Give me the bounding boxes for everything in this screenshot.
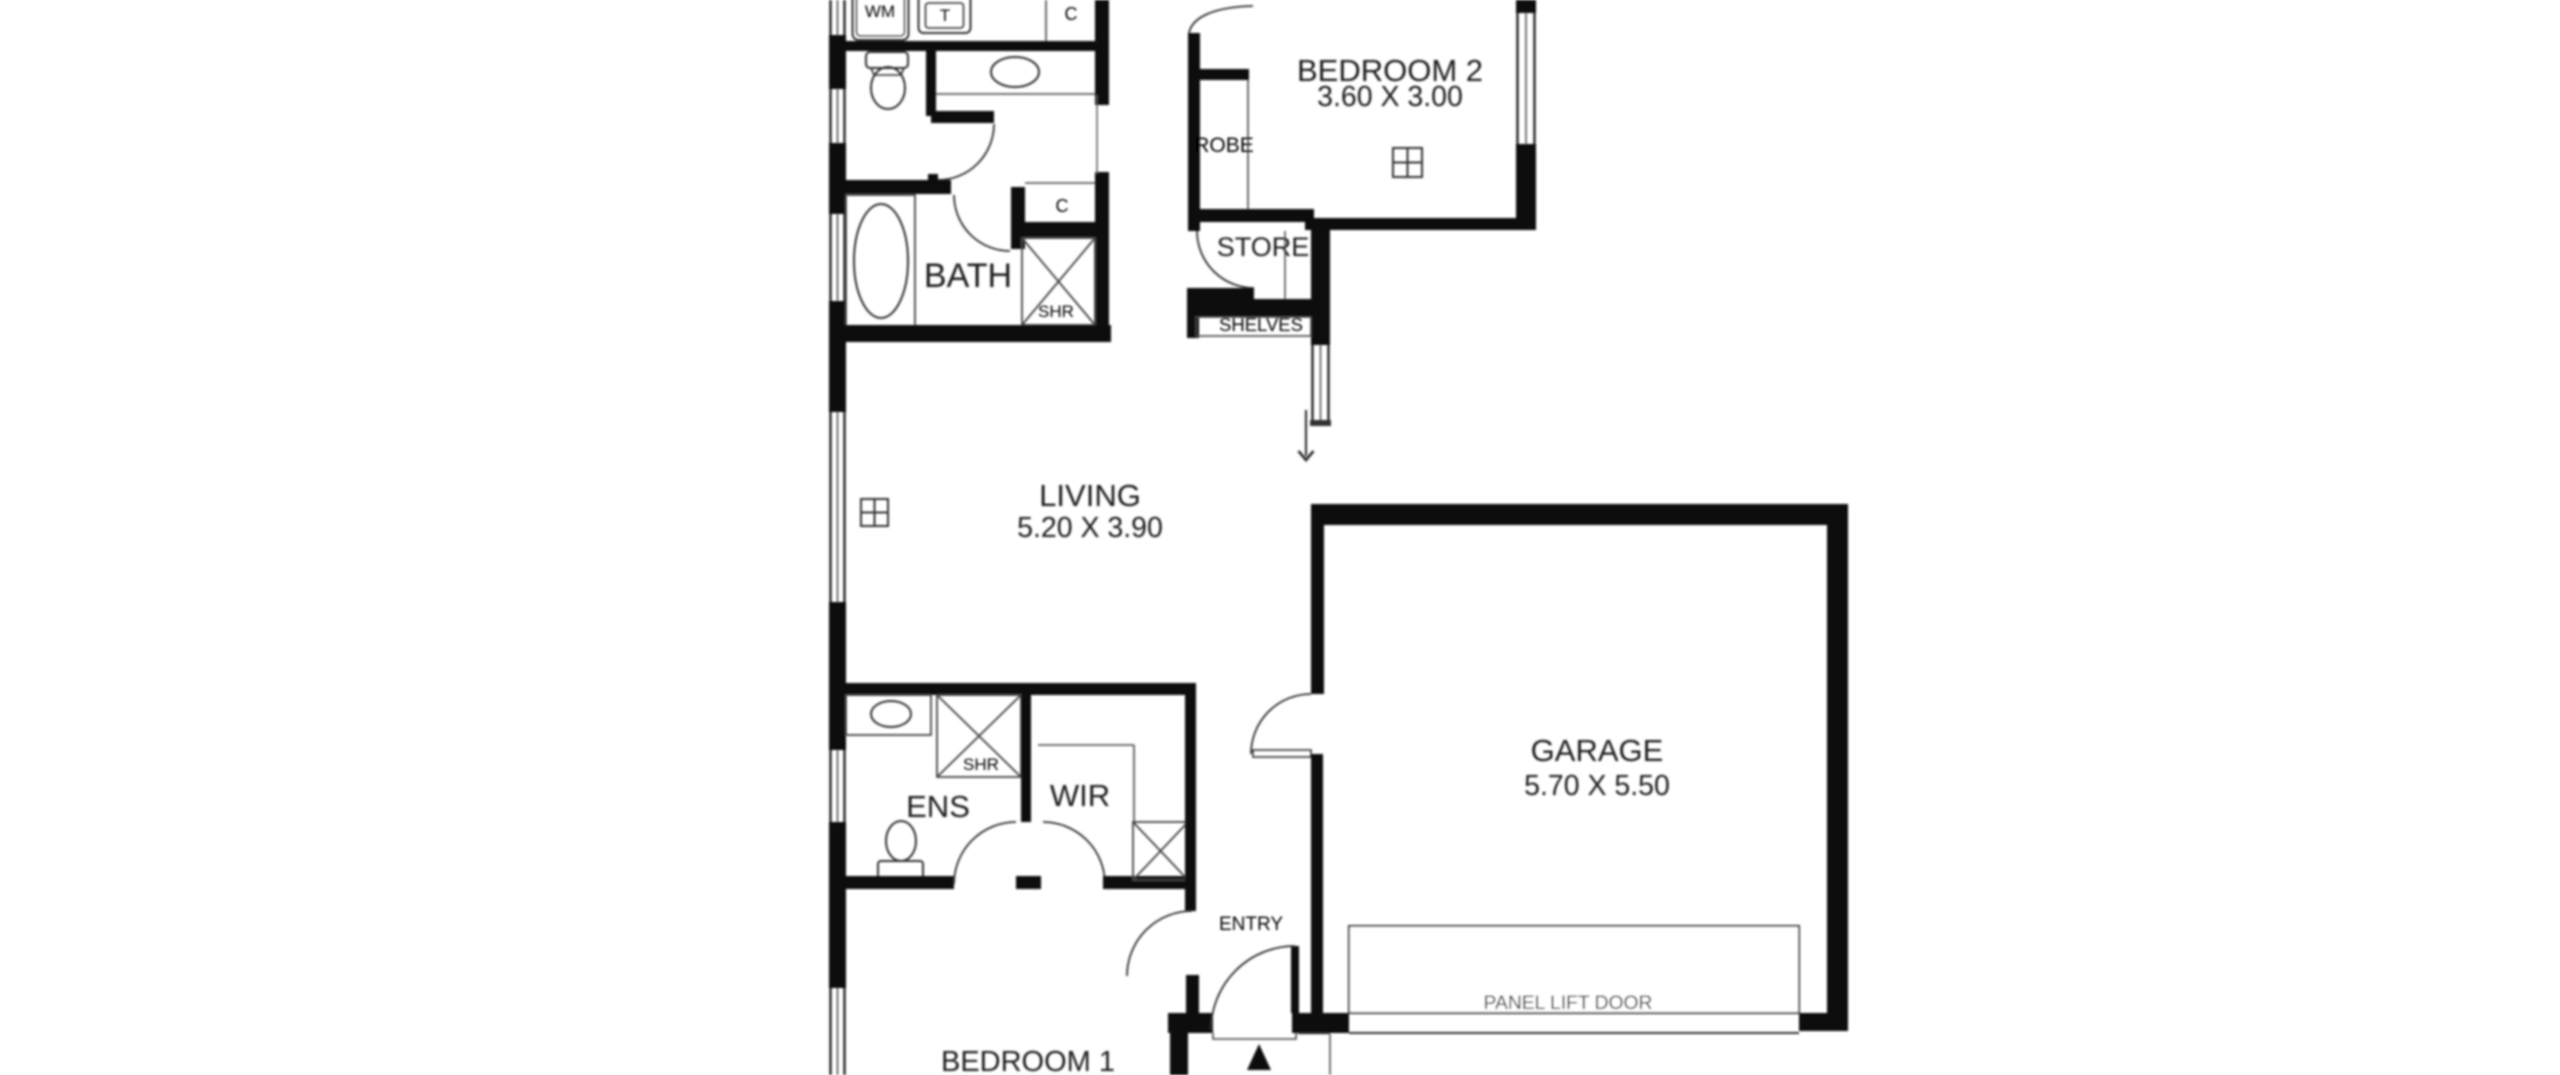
svg-text:C: C [1065,4,1078,24]
svg-text:ENTRY: ENTRY [1219,914,1283,935]
svg-text:BATH: BATH [924,257,1012,295]
svg-text:SHR: SHR [963,755,999,774]
svg-text:BEDROOM 1: BEDROOM 1 [941,1046,1115,1075]
svg-text:WM: WM [865,2,895,21]
svg-text:5.20 X 3.90: 5.20 X 3.90 [1017,512,1163,544]
svg-text:LIVING: LIVING [1039,478,1141,513]
svg-text:SHELVES: SHELVES [1219,314,1303,335]
svg-text:T: T [940,6,950,25]
svg-text:WIR: WIR [1050,778,1110,813]
svg-text:ENS: ENS [906,789,970,824]
svg-text:STORE: STORE [1217,232,1310,262]
svg-text:C: C [1056,196,1069,216]
svg-text:SHR: SHR [1038,302,1074,321]
svg-text:PANEL LIFT DOOR: PANEL LIFT DOOR [1484,993,1653,1014]
svg-text:ROBE: ROBE [1194,134,1254,157]
svg-text:GARAGE: GARAGE [1531,733,1664,768]
svg-text:3.60 X 3.00: 3.60 X 3.00 [1317,81,1463,113]
svg-text:5.70 X 5.50: 5.70 X 5.50 [1524,770,1670,802]
